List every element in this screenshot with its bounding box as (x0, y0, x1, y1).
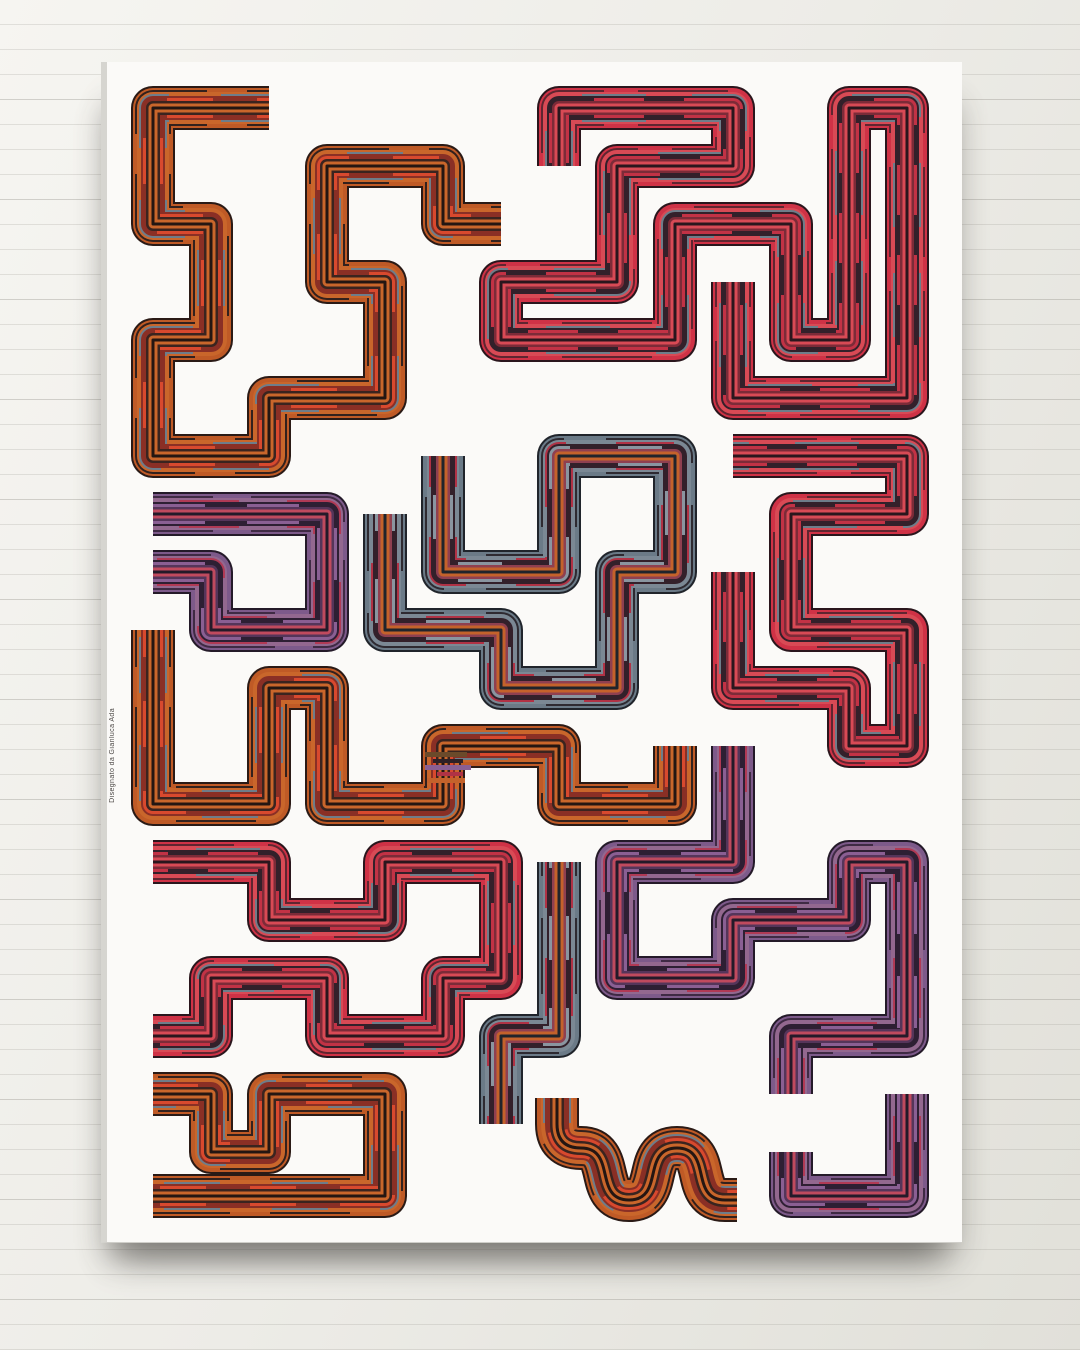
maze-artwork (107, 62, 962, 1243)
glitch-bar (437, 772, 463, 776)
glitch-bar (425, 765, 471, 770)
glitch-bar (425, 752, 467, 757)
maze-band-layer (733, 456, 907, 746)
glitch-bar (433, 759, 463, 763)
glitch-bar (427, 778, 465, 783)
gallery-wall: Disegnato da Gianluca Ada (0, 0, 1080, 1350)
artwork-canvas: Disegnato da Gianluca Ada (101, 62, 962, 1243)
artist-signature: Disegnato da Gianluca Ada (109, 708, 117, 803)
